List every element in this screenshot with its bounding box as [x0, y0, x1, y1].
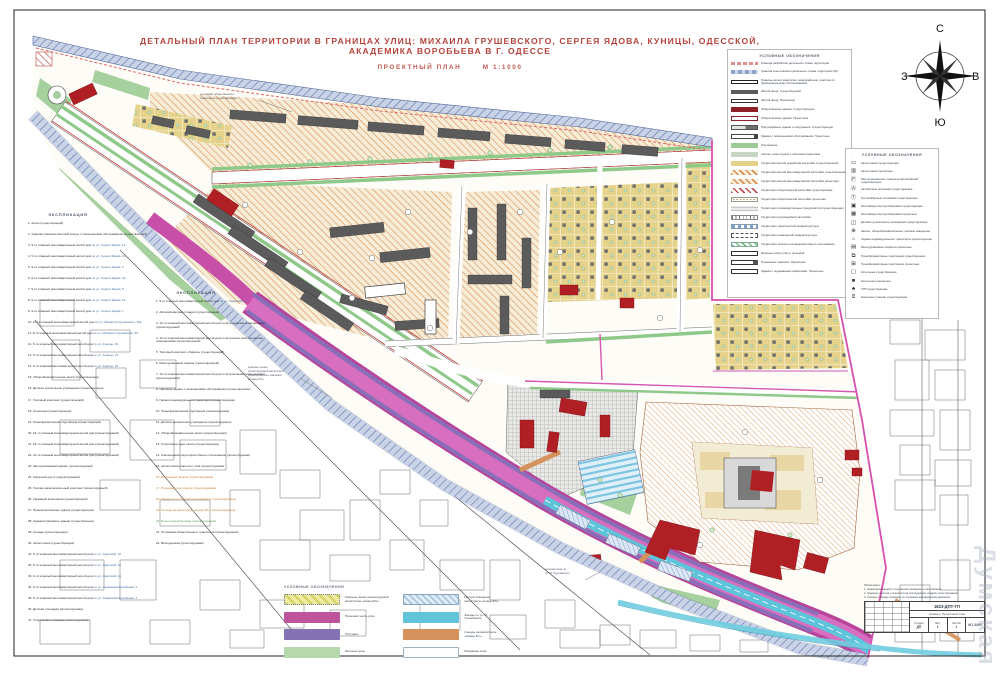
- explication-column-2: ЭКСПЛИКАЦИЯ 1. 9-ти этажный многоквартир…: [156, 290, 282, 553]
- legend-swatch: [731, 269, 758, 274]
- explication-item: 18. Котельная (существующая): [28, 410, 154, 413]
- title-block-grid: [865, 602, 910, 632]
- legend-label: Трансформаторные подстанции существующие: [861, 255, 925, 258]
- legend-swatch: [403, 629, 459, 640]
- note-line: 1. Нумерация зданий и сооружений приведе…: [864, 588, 985, 591]
- explication-item-ref: по ул. Сергея Ядова, 1а: [91, 243, 125, 247]
- legend-label: Контейнеры мусоросборников проектные: [861, 213, 917, 216]
- legend-row: ■Котельные проектные: [849, 279, 935, 284]
- legend-label: Проезжая часть улиц: [345, 615, 375, 618]
- legend-icon: Ⓣ: [849, 196, 858, 201]
- legend-swatch: [284, 647, 340, 658]
- legend-icon: ⊕: [849, 229, 858, 234]
- explication-item: 5. 9-ти этажный многоквартирный жилой до…: [28, 266, 154, 269]
- explication-item: 17. Площадка для отдыха (проектируемая): [156, 487, 282, 490]
- sheets-cell: Листов 1: [948, 618, 967, 632]
- legend-label: Граница разработки детального плана терр…: [761, 62, 829, 65]
- explication-item: 15. Общеобразовательная школа (существую…: [28, 376, 154, 379]
- legend-swatch: [731, 224, 758, 229]
- explication-item: 2. Административно-бытовой корпус с поме…: [28, 233, 154, 236]
- explication-item: 31. 5-ти этажный многоквартирный жилой д…: [28, 553, 154, 556]
- legend-row: ⌸Насосные станции существующие: [849, 295, 935, 300]
- explication-item-ref: по ул. Одесской, 10: [93, 552, 121, 556]
- explication-item: 18. Заезды по ул. Михаила Грушевского (п…: [156, 498, 282, 501]
- legend-row: Территория жилой усадебной застройки (су…: [731, 161, 848, 166]
- legend-label: Детские дошкольные учреждения существующ…: [861, 221, 927, 224]
- explication-item: 13. Спортивное ядро школы (существующее): [156, 443, 282, 446]
- explication-item: 17. Торговый комплекс (существующий): [28, 399, 154, 402]
- legend-row: ▭Автостоянки существующие: [849, 161, 935, 166]
- legend-row: Резервная зона: [403, 647, 506, 658]
- legend-row: Приусадебные здания и сооружения. Сущест…: [731, 125, 848, 130]
- explication-item-ref: по ул. Михаила Грушевского, 39а: [94, 320, 141, 324]
- explication-item: 2. Автозаправочная станция (существующая…: [156, 311, 282, 314]
- legend-row: Границы жилых кварталов, микрорайонов, у…: [731, 79, 848, 86]
- legend-swatch: [731, 80, 758, 85]
- legend-swatch: [731, 179, 758, 184]
- note-line: Примечания:: [864, 584, 985, 587]
- legend-label: Зеленые зоны: [345, 650, 365, 653]
- legend-primary-items: Граница разработки детального плана терр…: [731, 62, 848, 274]
- compass-north-label: С: [936, 23, 944, 35]
- legend-icon: ⊞: [849, 262, 858, 267]
- explication-item-ref: по ул. Одесской, 1: [219, 299, 246, 303]
- explication-item: 4. 5-ти этажный многоквартирный жилой до…: [28, 255, 154, 258]
- legend-label: Границы жилых кварталов, микрорайонов, у…: [761, 79, 848, 86]
- legend-row: ▦Контейнеры мусоросборников проектные: [849, 212, 935, 217]
- explication-item-ref: по ул. Сергея Ядова, 1б: [91, 254, 125, 258]
- explication-item: 21. 16-ти этажный многоквартирный жилой …: [28, 443, 154, 446]
- legend-row: Граница разработки детального плана терр…: [731, 62, 848, 65]
- legend-objects: УСЛОВНЫЕ ОБОЗНАЧЕНИЯ ▭Автостоянки сущест…: [845, 148, 939, 319]
- legend-swatch: [403, 612, 459, 623]
- legend-label: Красные линии улиц и проездов: [761, 252, 804, 255]
- explication-item-ref: по ул. Куницы, 21: [93, 353, 118, 357]
- explication-item: 16. Подземный паркинг (проектируемый): [156, 476, 282, 479]
- legend-row: ⊕Школы, общеобразовательные учебные заве…: [849, 229, 935, 234]
- explication-item: 19. Съезды на магистраль «Север-Юг» (про…: [156, 509, 282, 512]
- legend-row: ◫Детские дошкольные учреждения существую…: [849, 221, 935, 226]
- legend-row: Газоны, зоны отдыха с обычным покрытием: [731, 152, 848, 157]
- legend-row: Съезды на магистраль «Север-Юг»: [403, 629, 506, 640]
- sheet-cell: Лист 1: [929, 618, 948, 632]
- legend-row: Граница зоны влияния детального плана те…: [731, 70, 848, 75]
- legend-roads: УСЛОВНЫЕ ОБОЗНАЧЕНИЯ Красные линии проек…: [284, 585, 506, 658]
- legend-label: Котельные существующие: [861, 271, 897, 274]
- explication-item: 11. Детское дошкольное учреждение (проек…: [156, 421, 282, 424]
- legend-row: Общественные здания. Проектные: [731, 116, 848, 121]
- legend-label: Здания с помещениями обслуживания. Проек…: [761, 135, 829, 138]
- legend-row: Территория инженерной инфраструктуры: [731, 233, 848, 238]
- explication-item: 33. 9-ти этажный многоквартирный жилой д…: [28, 575, 154, 578]
- legend-label: Полоса отведения магистрали «Север-Юг»: [464, 596, 506, 603]
- legend-icon: ♣: [849, 287, 858, 292]
- legend-icon: ▥: [849, 169, 858, 174]
- explication-item: 5. Торговый комплекс «Таврия» (существую…: [156, 351, 282, 354]
- legend-swatch: [731, 251, 758, 256]
- legend-row: ⒶАвтобусные остановки существующие: [849, 187, 935, 192]
- legend-row: Проезжая часть улиц: [284, 612, 389, 623]
- stage-value: ДП: [910, 625, 928, 629]
- legend-label: Территория общественной застройки сущест…: [761, 189, 832, 192]
- explication-item: 20. 16-ти этажный многоквартирный жилой …: [28, 432, 154, 435]
- legend-row: Территория транспортной инфраструктуры: [731, 224, 848, 229]
- compass-west-label: З: [901, 71, 908, 83]
- legend-swatch: [731, 99, 758, 104]
- legend-swatch: [731, 188, 758, 193]
- legend-icon: ◫: [849, 221, 858, 226]
- legend-swatch: [731, 107, 758, 112]
- explication-item: 24. Офисный центр (проектируемый): [28, 476, 154, 479]
- explication-item: 15. Автостоянка открытого типа (проектир…: [156, 465, 282, 468]
- legend-label: Территория транспортной инфраструктуры: [761, 225, 819, 228]
- legend-swatch: [731, 161, 758, 166]
- legend-primary-header: УСЛОВНЫЕ ОБОЗНАЧЕНИЯ: [731, 54, 848, 58]
- explication-item-ref: по ул. Сергея Ядова, 3а: [91, 276, 125, 280]
- legend-label: Жилой фонд. Существующий: [761, 90, 801, 93]
- legend-label: Места временного хранения автомобилей су…: [861, 178, 935, 185]
- legend-swatch: [403, 647, 459, 658]
- note-line: 3. Съезды и заезды показаны по основным …: [864, 596, 985, 599]
- explication-item: 1. Ангар (существующий): [28, 222, 154, 225]
- legend-label: Территория зеленых насаждений общего пол…: [761, 243, 834, 246]
- title-block-notes: Примечания:1. Нумерация зданий и сооруже…: [864, 584, 985, 599]
- legend-icon: ■: [849, 279, 858, 284]
- explication-item: 19. Трансформаторная подстанция (существ…: [28, 421, 154, 424]
- legend-row: Тротуары: [284, 629, 389, 640]
- explication-item: 4. 16-ти этажный многоквартирный жилой д…: [156, 337, 282, 344]
- legend-row: Территория общественной застройки проект…: [731, 197, 848, 202]
- explication-item: 25. Торгово-развлекательный комплекс (пр…: [28, 487, 154, 490]
- explication-item: 3. 9-ти этажный многоквартирный жилой до…: [28, 244, 154, 247]
- legend-row: Подземные паркинги. Проектные: [731, 260, 848, 265]
- legend-label: Территория производственных предприятий …: [761, 207, 844, 210]
- watermark: Думская: [972, 546, 1000, 668]
- explication-2-items: 1. 9-ти этажный многоквартирный жилой до…: [156, 300, 282, 545]
- explication-item: 23. Многоуровневый паркинг (проектируемы…: [28, 465, 154, 468]
- explication-item: 14. Озелененная территория общего пользо…: [156, 454, 282, 457]
- legend-label: Подземные паркинги. Проектные: [761, 261, 806, 264]
- legend-icon: ▤: [849, 245, 858, 250]
- sheets-value: 1: [948, 625, 966, 629]
- compass-east-label: В: [972, 71, 979, 83]
- compass-south-label: Ю: [934, 117, 945, 129]
- explication-item-ref: по ул. Одесской, 14: [93, 574, 121, 578]
- explication-item: 30. Автостоянка (существующая): [28, 542, 154, 545]
- legend-row: Территория жилой многоквартирной застрой…: [731, 170, 848, 175]
- explication-item: 13. 5-ти этажный многоквартирный жилой д…: [28, 354, 154, 357]
- legend-swatch: [731, 233, 758, 238]
- explication-item: 12. Общеобразовательная школа (существую…: [156, 432, 282, 435]
- explication-item: 10. Трансформаторная подстанция (проекти…: [156, 410, 282, 413]
- subtitle-text: ПРОЕКТНЫЙ ПЛАН: [377, 64, 461, 71]
- legend-icon: Ⓟ: [849, 178, 858, 183]
- legend-row: ⌂Гаражи индивидуального транспорта сущес…: [849, 237, 935, 242]
- page-title: ДЕТАЛЬНЫЙ ПЛАН ТЕРРИТОРИИ В ГРАНИЦАХ УЛИ…: [120, 36, 780, 56]
- explication-item: 32. 5-ти этажный многоквартирный жилой д…: [28, 564, 154, 567]
- legend-icon: ▣: [849, 204, 858, 209]
- legend-label: Жилой фонд. Проектный: [761, 99, 795, 102]
- legend-swatch: [731, 260, 758, 265]
- legend-swatch: [731, 242, 758, 247]
- legend-swatch: [731, 197, 758, 202]
- legend-swatch: [731, 116, 758, 121]
- explication-column-1: ЭКСПЛИКАЦИЯ 1. Ангар (существующий)2. Ад…: [28, 212, 154, 630]
- explication-item-ref: по ул. Сергея Ядова, 3: [91, 265, 124, 269]
- legend-label: Контейнеры мусоросборников существующие: [861, 205, 923, 208]
- explication-item: 21. Остановка общественного транспорта (…: [156, 531, 282, 534]
- legend-row: Красные линии проектируемой магистрали «…: [284, 594, 389, 605]
- legend-row: Общественные здания. Существующие: [731, 107, 848, 112]
- explication-item-ref: по ул. Михаила Грушевского, 39: [93, 331, 139, 335]
- explication-item-ref: по ул. Академика Воробьева, 7: [93, 596, 137, 600]
- legend-label: Съезды на магистраль «Север-Юг»: [464, 631, 506, 638]
- explication-item-ref: по ул. Куницы, 23: [93, 364, 118, 368]
- explication-item-ref: по ул. Сергея Ядова, 5а: [91, 298, 125, 302]
- explication-item: 3. 16-ти этажный многоквартирный жилой д…: [156, 322, 282, 329]
- page-subtitle: ПРОЕКТНЫЙ ПЛАН М 1:1000: [120, 64, 780, 71]
- explication-item: 12. 5-ти этажный многоквартирный жилой д…: [28, 343, 154, 346]
- legend-row: Здания с помещениями обслуживания. Проек…: [731, 134, 848, 139]
- plan-sheet: остановка общественного транспорта (суще…: [0, 0, 1000, 676]
- explication-1-items: 1. Ангар (существующий)2. Административн…: [28, 222, 154, 623]
- explication-item: 27. Производственные здания (существующи…: [28, 509, 154, 512]
- explication-item: 1. 9-ти этажный многоквартирный жилой до…: [156, 300, 282, 303]
- explication-item: 14. 9-ти этажный многоквартирный жилой д…: [28, 365, 154, 368]
- legend-icon: ⧉: [849, 254, 858, 259]
- legend-label: ГРП существующие: [861, 288, 888, 291]
- legend-swatch: [284, 612, 340, 623]
- legend-label: Автостоянки проектные: [861, 170, 893, 173]
- legend-row: ▣Контейнеры мусоросборников существующие: [849, 204, 935, 209]
- legend-label: Территория инженерной инфраструктуры: [761, 234, 817, 237]
- legend-label: Тротуары: [345, 633, 358, 636]
- title-block: Примечания:1. Нумерация зданий и сооруже…: [864, 584, 985, 655]
- legend-swatch: [731, 143, 758, 148]
- legend-row: Территория общественной застройки сущест…: [731, 188, 848, 193]
- legend-label: Гаражи индивидуального транспорта сущест…: [861, 238, 932, 241]
- legend-label: Красные линии проектируемой магистрали «…: [345, 596, 389, 603]
- legend-row: Заезды по ул. М. Грушевского: [403, 612, 506, 623]
- legend-row: Жилой фонд. Проектный: [731, 99, 848, 104]
- annotation-3-line-2: ул. М. Грушевского: [545, 571, 570, 575]
- legend-row: Здания с подземными паркингами. Проектны…: [731, 269, 848, 274]
- legend-label: Территория жилой многоквартирной застрой…: [761, 171, 845, 174]
- explication-item: 22. Велодорожка (проектируемая): [156, 542, 282, 545]
- explication-item: 28. Административное здание (существующе…: [28, 520, 154, 523]
- drawing-header: ДЕТАЛЬНЫЙ ПЛАН ТЕРРИТОРИИ В ГРАНИЦАХ УЛИ…: [120, 36, 780, 71]
- legend-icon: ▦: [849, 212, 858, 217]
- legend-row: Озеленение: [731, 143, 848, 148]
- legend-swatch: [284, 594, 340, 605]
- explication-item: 7. 16-ти этажный многоквартирный жилой д…: [156, 373, 282, 380]
- legend-row: ⊞Трансформаторные подстанции проектные: [849, 262, 935, 267]
- legend-row: Территория жилой многоквартирной застрой…: [731, 179, 848, 184]
- explication-item-ref: по ул. Академика Воробьева, 5: [93, 585, 137, 589]
- legend-swatch: [731, 62, 758, 65]
- legend-row: ⓉТроллейбусные остановки существующие: [849, 196, 935, 201]
- explication-item: 6. 9-ти этажный многоквартирный жилой до…: [28, 277, 154, 280]
- legend-swatch: [731, 206, 758, 211]
- legend-row: ⧉Трансформаторные подстанции существующи…: [849, 254, 935, 259]
- legend-row: Территория производственных предприятий …: [731, 206, 848, 211]
- legend-label: Приусадебные здания и сооружения. Сущест…: [761, 126, 833, 129]
- legend-roads-header: УСЛОВНЫЕ ОБОЗНАЧЕНИЯ: [284, 585, 506, 589]
- explication-1-header: ЭКСПЛИКАЦИЯ: [28, 212, 108, 217]
- legend-objects-items: ▭Автостоянки существующие▥Автостоянки пр…: [849, 161, 935, 300]
- explication-item: 36. Детская площадка (проектируемая): [28, 608, 154, 611]
- legend-row: ▥Автостоянки проектные: [849, 169, 935, 174]
- explication-item: 34. 9-ти этажный многоквартирный жилой д…: [28, 586, 154, 589]
- annotation-1-line-2: транспорта (существующая): [200, 96, 237, 100]
- legend-icon: ▭: [849, 161, 858, 166]
- legend-icon: ⌸: [849, 295, 858, 300]
- legend-swatch: [731, 152, 758, 157]
- explication-item: 8. Офисное здание с помещениями обслужив…: [156, 388, 282, 391]
- legend-swatch: [284, 629, 340, 640]
- legend-label: Школы, общеобразовательные учебные завед…: [861, 230, 930, 233]
- legend-row: Полоса отведения магистрали «Север-Юг»: [403, 594, 506, 605]
- legend-label: Насосные станции существующие: [861, 296, 907, 299]
- explication-item: 29. Склады (существующие): [28, 531, 154, 534]
- legend-swatch: [731, 90, 758, 95]
- legend-swatch: [731, 215, 758, 220]
- explication-item: 16. Детское дошкольное учреждение (сущес…: [28, 387, 154, 390]
- legend-label: Здания с подземными паркингами. Проектны…: [761, 270, 824, 273]
- legend-primary: УСЛОВНЫЕ ОБОЗНАЧЕНИЯ Граница разработки …: [727, 49, 852, 298]
- explication-item: 8. 9-ти этажный многоквартирный жилой до…: [28, 299, 154, 302]
- legend-swatch: [731, 125, 758, 130]
- title-block-table: 1823-ДПТ-ГП Схема 1. Проектный план Стад…: [864, 601, 985, 633]
- legend-roads-left: Красные линии проектируемой магистрали «…: [284, 594, 389, 658]
- legend-label: Котельные проектные: [861, 280, 891, 283]
- legend-icon: ⌂: [849, 237, 858, 242]
- scale-label: М 1:1000: [483, 64, 523, 71]
- compass-rose: С Ю З В: [900, 18, 980, 130]
- legend-row: Территория приусадебной застройки: [731, 215, 848, 220]
- legend-label: Общественные здания. Существующие: [761, 108, 814, 111]
- legend-row: ⓅМеста временного хранения автомобилей с…: [849, 178, 935, 185]
- stage-cell: Стадия ДП: [910, 618, 929, 632]
- legend-icon: Ⓐ: [849, 187, 858, 192]
- sheet-value: 1: [929, 625, 947, 629]
- legend-label: Резервная зона: [464, 650, 486, 653]
- legend-swatch: [731, 170, 758, 175]
- legend-row: ♣ГРП существующие: [849, 287, 935, 292]
- legend-label: Общественные здания. Проектные: [761, 117, 808, 120]
- compass-star: [904, 40, 976, 112]
- explication-item: 35. 5-ти этажный многоквартирный жилой д…: [28, 597, 154, 600]
- legend-label: Территория жилой усадебной застройки (су…: [761, 162, 838, 165]
- explication-item: 9. Гаражи индивидуального транспорта (су…: [156, 399, 282, 402]
- explication-item-ref: по ул. Сергея Ядова, 7: [91, 309, 124, 313]
- legend-icon: ▢: [849, 270, 858, 275]
- explication-item: 7. 5-ти этажный многоквартирный жилой до…: [28, 288, 154, 291]
- explication-item: 11. 9-ти этажный многоквартирный жилой д…: [28, 332, 154, 335]
- legend-row: Зеленые зоны: [284, 647, 389, 658]
- legend-label: Троллейбусные остановки существующие: [861, 197, 918, 200]
- explication-item: 10. 10-ти этажный многоквартирный жилой …: [28, 321, 154, 324]
- legend-label: Трансформаторные подстанции проектные: [861, 263, 919, 266]
- legend-label: Автостоянки существующие: [861, 162, 899, 165]
- legend-objects-header: УСЛОВНЫЕ ОБОЗНАЧЕНИЯ: [849, 153, 935, 157]
- legend-label: Заезды по ул. М. Грушевского: [464, 614, 506, 621]
- legend-label: Граница зоны влияния детального плана те…: [761, 70, 838, 73]
- explication-item: 37. Спортивная площадка (проектируемая): [28, 619, 154, 622]
- explication-item: 22. 10-ти этажный многоквартирный жилой …: [28, 454, 154, 457]
- legend-row: ▢Котельные существующие: [849, 270, 935, 275]
- legend-row: Территория зеленых насаждений общего пол…: [731, 242, 848, 247]
- legend-label: Озеленение: [761, 144, 777, 147]
- legend-label: Газоны, зоны отдыха с обычным покрытием: [761, 153, 820, 156]
- legend-roads-right: Полоса отведения магистрали «Север-Юг»За…: [403, 594, 506, 658]
- explication-item-ref: по ул. Сергея Ядова, 5: [91, 287, 124, 291]
- legend-label: Автобусные остановки существующие: [861, 188, 913, 191]
- legend-label: Территория жилой многоквартирной застрой…: [761, 180, 839, 183]
- legend-row: Жилой фонд. Существующий: [731, 90, 848, 95]
- explication-2-header: ЭКСПЛИКАЦИЯ: [156, 290, 236, 295]
- note-line: 2. Границы участков уточняются на послед…: [864, 592, 985, 595]
- explication-item: 6. Многоуровневый паркинг (проектируемый…: [156, 362, 282, 365]
- explication-item: 9. 9-ти этажный многоквартирный жилой до…: [28, 310, 154, 313]
- legend-swatch: [731, 70, 758, 75]
- explication-item-ref: по ул. Одесской, 12: [93, 563, 121, 567]
- legend-row: ▤Многоуровневые паркинги проектные: [849, 245, 935, 250]
- legend-label: Территория приусадебной застройки: [761, 216, 811, 219]
- legend-swatch: [731, 134, 758, 139]
- explication-item: 20. Пешеходный бульвар (проектируемый): [156, 520, 282, 523]
- legend-label: Территория общественной застройки проект…: [761, 198, 826, 201]
- explication-item: 26. Гаражный кооператив (существующий): [28, 498, 154, 501]
- explication-item-ref: по ул. Куницы, 19: [93, 342, 118, 346]
- legend-row: Красные линии улиц и проездов: [731, 251, 848, 256]
- legend-label: Многоуровневые паркинги проектные: [861, 246, 912, 249]
- legend-swatch: [403, 594, 459, 605]
